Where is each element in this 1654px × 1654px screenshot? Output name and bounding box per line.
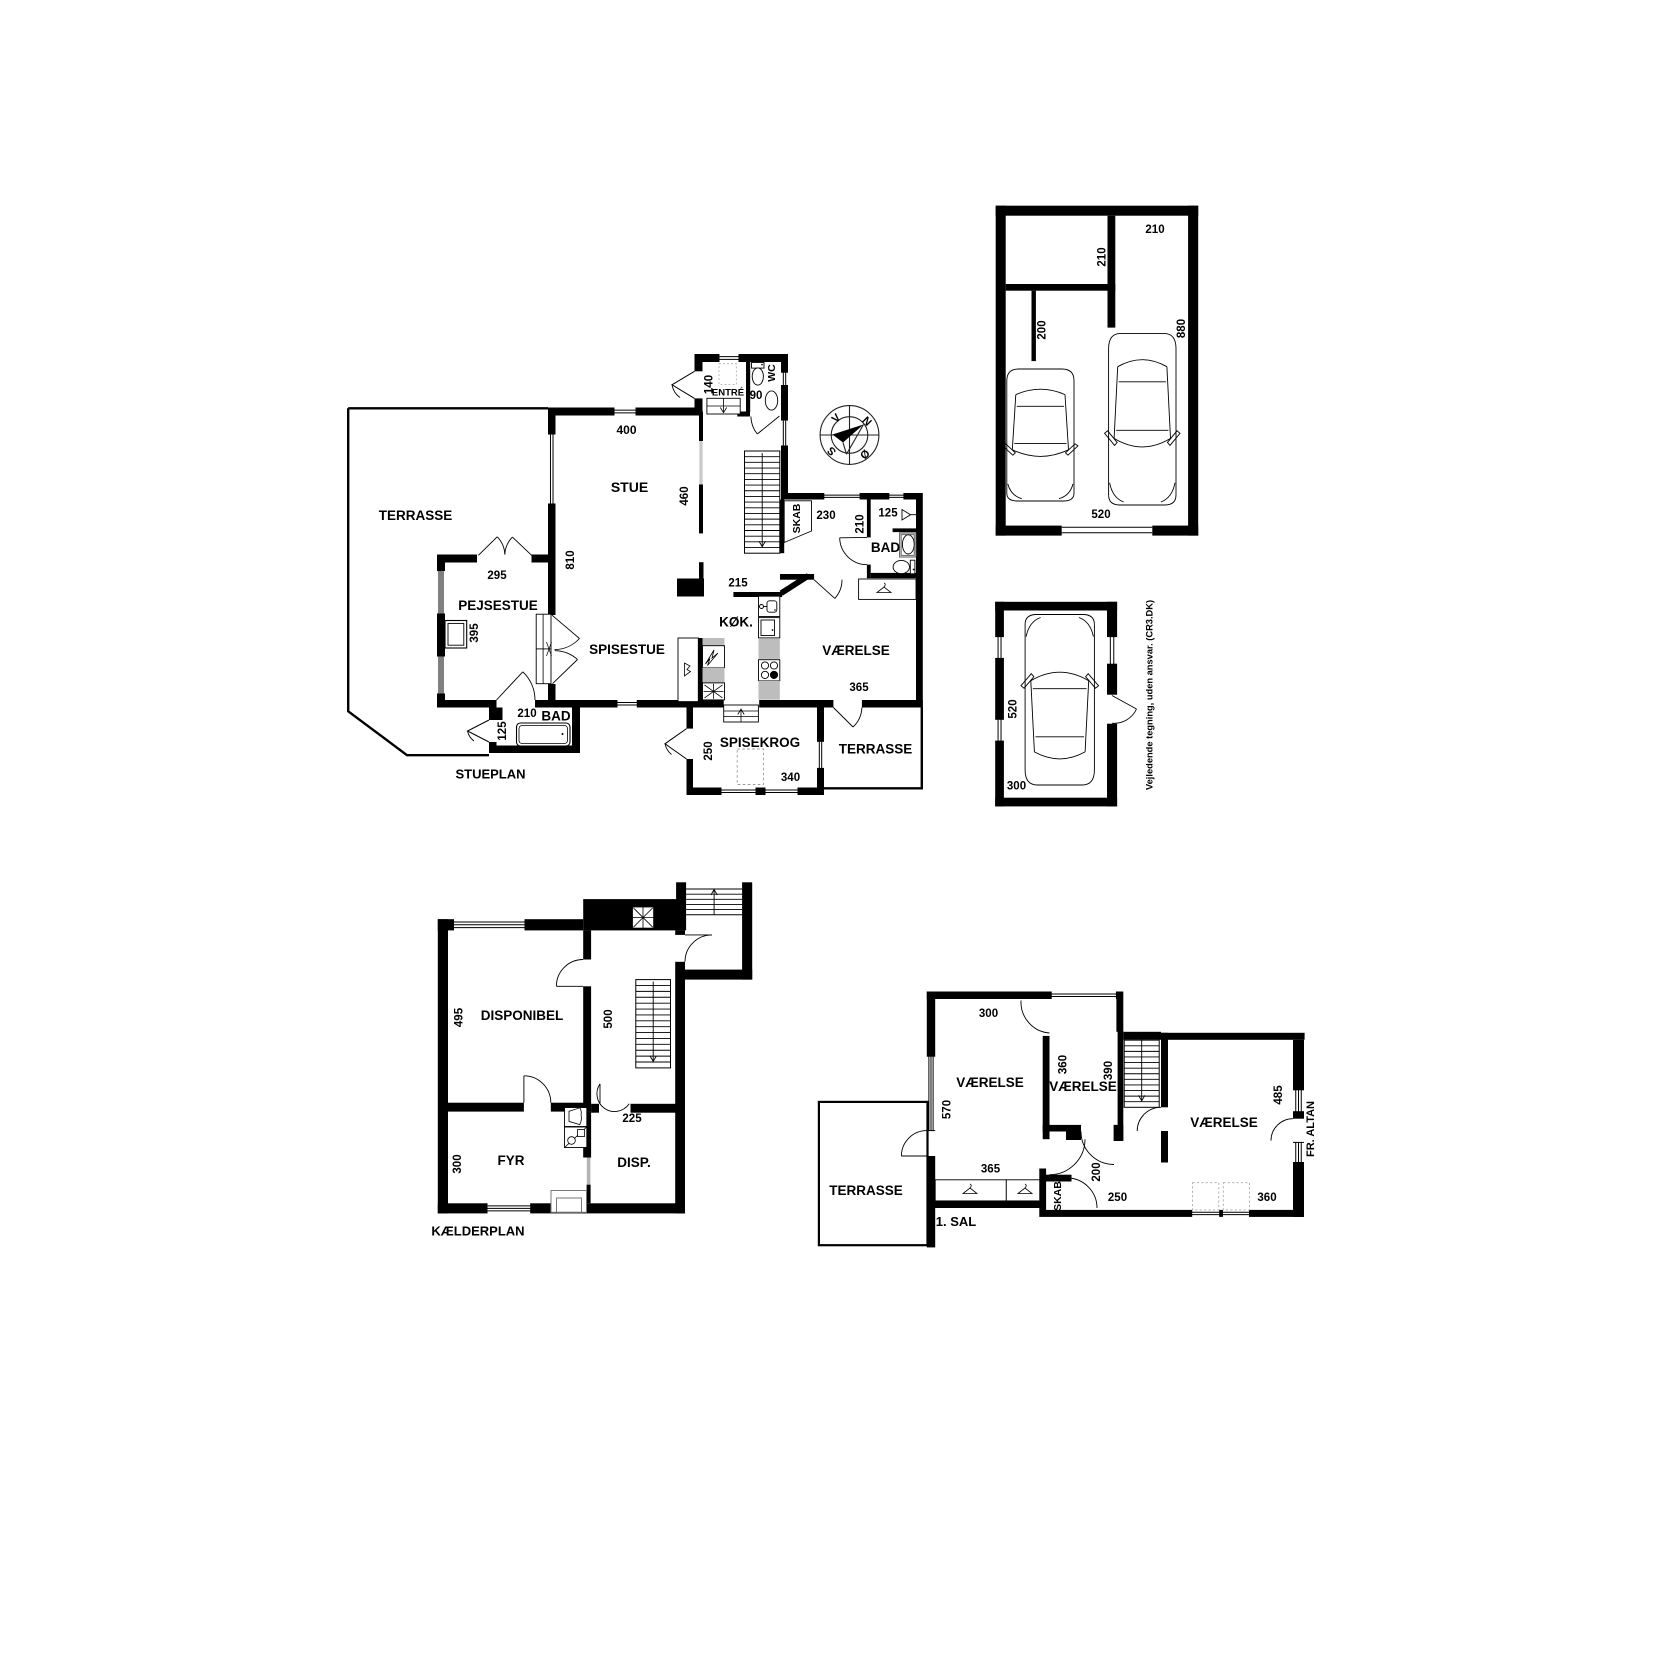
- svg-text:SKAB: SKAB: [791, 503, 803, 533]
- svg-text:365: 365: [849, 682, 869, 694]
- svg-text:DISP.: DISP.: [617, 1155, 651, 1170]
- svg-text:390: 390: [1103, 1061, 1115, 1080]
- svg-text:BAD: BAD: [541, 708, 570, 723]
- svg-text:880: 880: [1176, 319, 1188, 338]
- svg-text:365: 365: [981, 1164, 1001, 1176]
- svg-text:250: 250: [1108, 1192, 1127, 1204]
- svg-text:90: 90: [750, 390, 763, 402]
- svg-text:TERRASSE: TERRASSE: [839, 741, 913, 756]
- svg-text:PEJSESTUE: PEJSESTUE: [458, 598, 538, 613]
- svg-text:VÆRELSE: VÆRELSE: [822, 643, 890, 658]
- svg-text:1. SAL: 1. SAL: [936, 1214, 977, 1229]
- svg-text:TERRASSE: TERRASSE: [379, 508, 453, 523]
- svg-text:250: 250: [703, 741, 715, 760]
- svg-text:Vejledende tegning, uden ansva: Vejledende tegning, uden ansvar. (CR3.DK…: [1144, 600, 1154, 790]
- svg-text:460: 460: [679, 486, 691, 505]
- svg-text:360: 360: [1058, 1055, 1070, 1074]
- svg-text:STUE: STUE: [611, 479, 648, 495]
- svg-text:225: 225: [622, 1113, 642, 1125]
- svg-text:570: 570: [942, 1100, 954, 1119]
- svg-text:400: 400: [616, 423, 636, 437]
- svg-text:SPISEKROG: SPISEKROG: [720, 735, 800, 750]
- svg-text:125: 125: [878, 508, 898, 520]
- svg-text:WC: WC: [766, 364, 778, 382]
- svg-text:520: 520: [1008, 699, 1020, 718]
- svg-text:140: 140: [704, 375, 716, 394]
- svg-text:SPISESTUE: SPISESTUE: [589, 642, 665, 657]
- svg-text:TERRASSE: TERRASSE: [829, 1183, 903, 1198]
- svg-text:125: 125: [497, 721, 509, 741]
- svg-text:200: 200: [1037, 320, 1049, 339]
- svg-text:200: 200: [1091, 1162, 1103, 1181]
- svg-text:210: 210: [517, 708, 536, 720]
- svg-text:210: 210: [855, 514, 867, 533]
- svg-text:810: 810: [565, 550, 577, 569]
- svg-text:VÆRELSE: VÆRELSE: [1049, 1079, 1117, 1094]
- svg-text:VÆRELSE: VÆRELSE: [956, 1075, 1024, 1090]
- svg-text:300: 300: [452, 1154, 464, 1173]
- svg-text:STUEPLAN: STUEPLAN: [455, 767, 525, 782]
- svg-text:230: 230: [816, 510, 835, 522]
- svg-text:520: 520: [1091, 509, 1110, 521]
- svg-text:FYR: FYR: [498, 1153, 525, 1168]
- svg-text:FR. ALTAN: FR. ALTAN: [1305, 1101, 1317, 1157]
- svg-text:VÆRELSE: VÆRELSE: [1190, 1115, 1258, 1130]
- svg-text:215: 215: [728, 578, 748, 590]
- svg-text:KÆLDERPLAN: KÆLDERPLAN: [431, 1224, 524, 1239]
- svg-text:495: 495: [454, 1007, 466, 1027]
- svg-text:BAD: BAD: [871, 540, 900, 555]
- svg-text:210: 210: [1097, 247, 1109, 266]
- svg-text:500: 500: [603, 1009, 615, 1028]
- svg-text:ENTRÉ: ENTRÉ: [712, 387, 744, 398]
- svg-text:485: 485: [1273, 1085, 1285, 1105]
- svg-text:KØK.: KØK.: [719, 614, 753, 629]
- svg-text:360: 360: [1257, 1192, 1276, 1204]
- svg-text:295: 295: [487, 570, 507, 582]
- svg-text:300: 300: [1007, 781, 1026, 793]
- svg-text:SKAB: SKAB: [1052, 1181, 1064, 1211]
- svg-text:DISPONIBEL: DISPONIBEL: [481, 1008, 564, 1023]
- svg-text:395: 395: [469, 623, 481, 643]
- svg-text:300: 300: [979, 1008, 998, 1020]
- svg-text:340: 340: [781, 772, 800, 784]
- svg-text:210: 210: [1145, 224, 1164, 236]
